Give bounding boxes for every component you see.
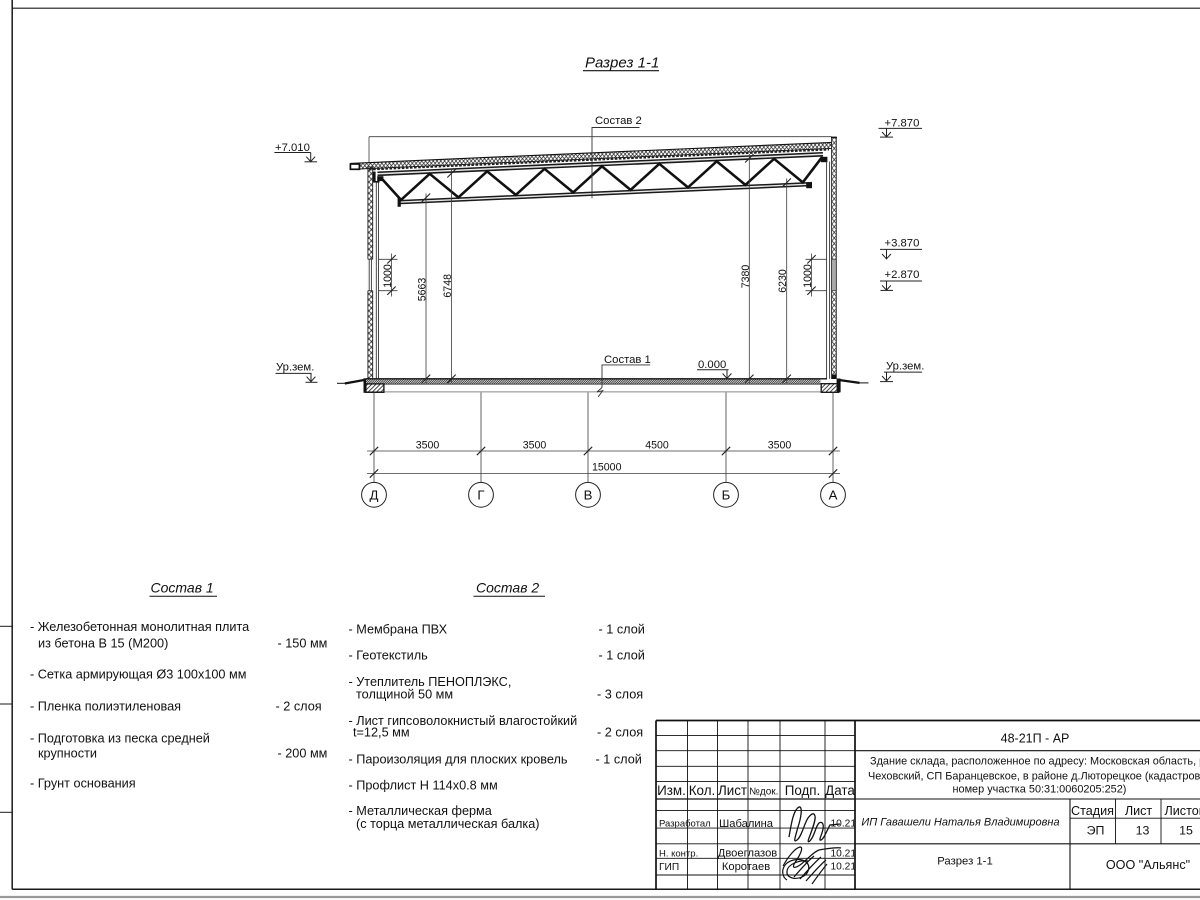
svg-text:- Пленка полиэтиленовая: - Пленка полиэтиленовая (30, 700, 181, 714)
svg-text:6230: 6230 (777, 269, 789, 293)
svg-text:Кол.: Кол. (689, 783, 716, 798)
svg-text:Г: Г (477, 488, 484, 503)
svg-text:10.21: 10.21 (831, 818, 857, 829)
svg-text:- Геотекстиль: - Геотекстиль (349, 649, 429, 663)
svg-text:1000: 1000 (382, 264, 394, 288)
svg-text:- 200 мм: - 200 мм (278, 746, 328, 760)
svg-text:- Профлист Н 114х0.8 мм: - Профлист Н 114х0.8 мм (349, 779, 498, 793)
svg-text:Изм.: Изм. (657, 783, 686, 798)
svg-text:- 1 слой: - 1 слой (596, 752, 642, 766)
svg-text:+2.870: +2.870 (885, 269, 920, 281)
svg-text:№док.: №док. (749, 786, 778, 797)
svg-text:Лист: Лист (1125, 804, 1153, 818)
svg-text:из бетона В 15 (М200): из бетона В 15 (М200) (38, 636, 168, 650)
svg-text:Чеховский, СП Баранцевское, в: Чеховский, СП Баранцевское, в районе д.Л… (868, 771, 1200, 783)
svg-text:В: В (584, 488, 593, 503)
svg-text:ГИП: ГИП (659, 862, 679, 873)
svg-text:Разработал: Разработал (659, 818, 711, 829)
svg-text:Состав 2: Состав 2 (595, 115, 642, 127)
svg-text:- Пароизоляция для плоских кро: - Пароизоляция для плоских кровель (349, 752, 568, 766)
svg-text:10.21: 10.21 (831, 848, 857, 859)
svg-text:0.000: 0.000 (698, 359, 726, 371)
svg-text:15000: 15000 (592, 461, 622, 473)
svg-text:крупности: крупности (38, 746, 97, 760)
svg-text:А: А (829, 488, 838, 503)
svg-text:- 2 слоя: - 2 слоя (276, 700, 322, 714)
svg-text:толщиной 50 мм: толщиной 50 мм (356, 687, 453, 701)
svg-text:- Грунт основания: - Грунт основания (30, 777, 136, 791)
svg-text:ИП Гавашели Наталья Владимиров: ИП Гавашели Наталья Владимировна (861, 817, 1059, 829)
svg-text:Стадия: Стадия (1071, 804, 1114, 818)
svg-text:Двоеглазов: Двоеглазов (718, 848, 778, 860)
svg-text:Здание склада, расположенное п: Здание склада, расположенное по адресу: … (870, 756, 1200, 768)
svg-text:4500: 4500 (645, 439, 669, 451)
svg-text:- 1 слой: - 1 слой (599, 649, 645, 663)
svg-text:3500: 3500 (523, 439, 547, 451)
svg-text:15: 15 (1179, 824, 1193, 838)
svg-text:Листов: Листов (1165, 804, 1200, 818)
svg-text:Ур.зем.: Ур.зем. (276, 361, 314, 373)
svg-text:Подп.: Подп. (785, 783, 821, 798)
svg-text:Д: Д (370, 488, 379, 503)
svg-text:ООО "Альянс": ООО "Альянс" (1106, 858, 1190, 872)
svg-text:t=12,5 мм: t=12,5 мм (353, 726, 410, 740)
svg-text:- Мембрана ПВХ: - Мембрана ПВХ (349, 622, 448, 636)
svg-text:ЭП: ЭП (1087, 824, 1105, 838)
svg-text:Состав 1: Состав 1 (604, 354, 651, 366)
svg-text:- 3 слоя: - 3 слоя (597, 687, 643, 701)
svg-text:Ур.зем.: Ур.зем. (886, 360, 924, 372)
svg-text:(с торца металлическая балка): (с торца металлическая балка) (356, 817, 540, 831)
svg-text:Разрез 1-1: Разрез 1-1 (937, 855, 992, 867)
svg-text:13: 13 (1136, 824, 1150, 838)
svg-text:Б: Б (722, 488, 731, 503)
svg-text:1000: 1000 (802, 264, 814, 288)
svg-text:+3.870: +3.870 (885, 237, 920, 249)
svg-text:3500: 3500 (416, 439, 440, 451)
svg-text:48-21П - АР: 48-21П - АР (1001, 732, 1070, 746)
svg-text:Н. контр.: Н. контр. (659, 848, 698, 859)
svg-text:Коротаев: Коротаев (722, 861, 770, 873)
svg-text:Дата: Дата (825, 783, 855, 798)
svg-text:+7.870: +7.870 (885, 117, 920, 129)
svg-text:- 1 слой: - 1 слой (599, 622, 645, 636)
svg-text:Разрез 1-1: Разрез 1-1 (585, 55, 659, 72)
svg-text:5663: 5663 (417, 278, 429, 302)
svg-text:- Сетка армирующая Ø3 100х100: - Сетка армирующая Ø3 100х100 мм (30, 668, 246, 682)
svg-text:Состав 2: Состав 2 (476, 580, 539, 596)
svg-text:- 150 мм: - 150 мм (278, 636, 328, 650)
svg-text:Шабалина: Шабалина (719, 818, 774, 830)
svg-text:Состав 1: Состав 1 (151, 580, 214, 596)
svg-text:- Подготовка из песка средней: - Подготовка из песка средней (30, 731, 210, 745)
svg-text:- Железобетонная монолитная п: - Железобетонная монолитная плита (30, 620, 250, 634)
svg-text:номер участка 50:31:0060205:25: номер участка 50:31:0060205:252) (953, 784, 1127, 796)
svg-text:3500: 3500 (768, 439, 792, 451)
svg-text:Лист: Лист (718, 783, 747, 798)
svg-text:6748: 6748 (442, 274, 454, 298)
svg-text:7380: 7380 (740, 265, 752, 289)
svg-text:- 2 слоя: - 2 слоя (597, 725, 643, 739)
svg-text:10.21: 10.21 (831, 862, 857, 873)
